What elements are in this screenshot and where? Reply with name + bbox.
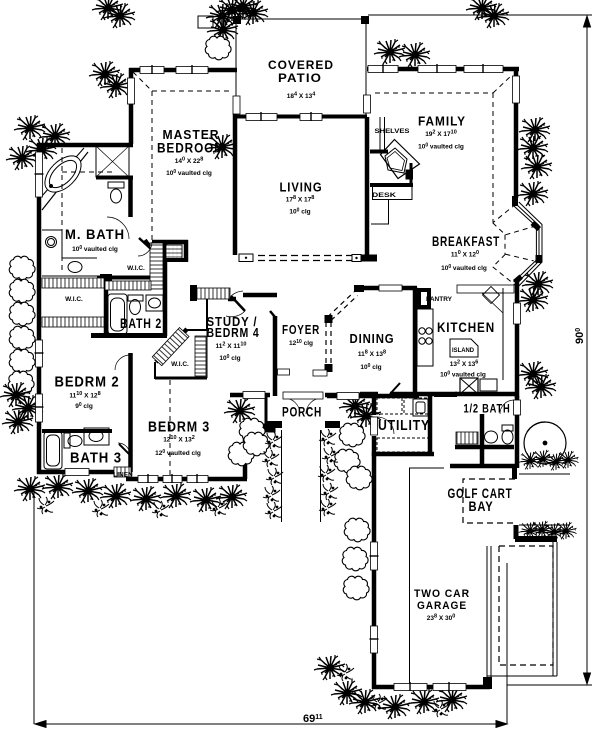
- svg-text:FAMILY: FAMILY: [418, 115, 466, 129]
- svg-text:BEDROOM: BEDROOM: [157, 141, 225, 156]
- svg-text:KITCHEN: KITCHEN: [437, 320, 495, 335]
- svg-text:M. BATH: M. BATH: [65, 226, 125, 242]
- svg-text:1210 X 132: 1210 X 132: [163, 435, 195, 444]
- svg-text:118 X 138: 118 X 138: [358, 350, 386, 359]
- svg-text:1110 X 128: 1110 X 128: [69, 391, 100, 400]
- svg-text:110 X 120: 110 X 120: [451, 250, 479, 259]
- svg-text:SHELVES: SHELVES: [375, 128, 411, 135]
- svg-text:PORCH: PORCH: [282, 405, 322, 420]
- svg-text:178 X 178: 178 X 178: [286, 195, 315, 204]
- svg-text:DESK: DESK: [372, 192, 396, 199]
- svg-text:DINING: DINING: [350, 331, 395, 346]
- svg-text:184 X 134: 184 X 134: [287, 92, 316, 101]
- svg-text:100 vaulted clg: 100 vaulted clg: [72, 245, 118, 253]
- svg-text:W.I.C.: W.I.C.: [127, 265, 145, 272]
- svg-text:100 vaulted clg: 100 vaulted clg: [418, 143, 464, 151]
- svg-text:BATH 2: BATH 2: [120, 315, 162, 331]
- svg-text:1210 clg: 1210 clg: [289, 339, 313, 347]
- svg-text:W.I.C.: W.I.C.: [171, 361, 189, 368]
- svg-text:BAY: BAY: [469, 499, 494, 514]
- svg-text:W.I.C.: W.I.C.: [65, 296, 83, 303]
- svg-text:100 vaulted clg: 100 vaulted clg: [166, 169, 212, 177]
- svg-text:BREAKFAST: BREAKFAST: [432, 233, 500, 249]
- svg-text:FOYER: FOYER: [282, 323, 320, 337]
- svg-text:90 clg: 90 clg: [75, 402, 93, 410]
- svg-text:100 vaulted clg: 100 vaulted clg: [441, 264, 487, 272]
- svg-text:GARAGE: GARAGE: [417, 600, 467, 612]
- svg-text:COVERED: COVERED: [268, 58, 334, 72]
- svg-text:100 clg: 100 clg: [360, 363, 381, 371]
- svg-text:BATH 3: BATH 3: [70, 451, 122, 467]
- svg-text:BEDRM 2: BEDRM 2: [55, 374, 120, 391]
- svg-text:1/2 BATH: 1/2 BATH: [464, 402, 511, 416]
- svg-text:PANTRY: PANTRY: [426, 296, 453, 303]
- svg-text:100 clg: 100 clg: [289, 208, 310, 216]
- svg-text:BEDRM 3: BEDRM 3: [148, 419, 210, 436]
- svg-text:140 X 228: 140 X 228: [175, 157, 204, 166]
- svg-text:UTILITY: UTILITY: [378, 417, 430, 434]
- svg-text:120 vaulted clg: 120 vaulted clg: [155, 449, 201, 457]
- svg-text:100 clg: 100 clg: [219, 354, 240, 362]
- svg-text:100 vaulted clg: 100 vaulted clg: [440, 371, 486, 379]
- svg-text:132 X 136: 132 X 136: [450, 360, 479, 369]
- svg-text:ISLAND: ISLAND: [452, 347, 474, 354]
- svg-text:238 X 300: 238 X 300: [427, 614, 456, 623]
- svg-text:BEDRM 4: BEDRM 4: [207, 325, 260, 340]
- svg-text:LINEN: LINEN: [113, 472, 133, 479]
- svg-text:PATIO: PATIO: [278, 71, 322, 85]
- svg-text:LIVING: LIVING: [280, 181, 323, 195]
- svg-text:TWO CAR: TWO CAR: [414, 588, 470, 600]
